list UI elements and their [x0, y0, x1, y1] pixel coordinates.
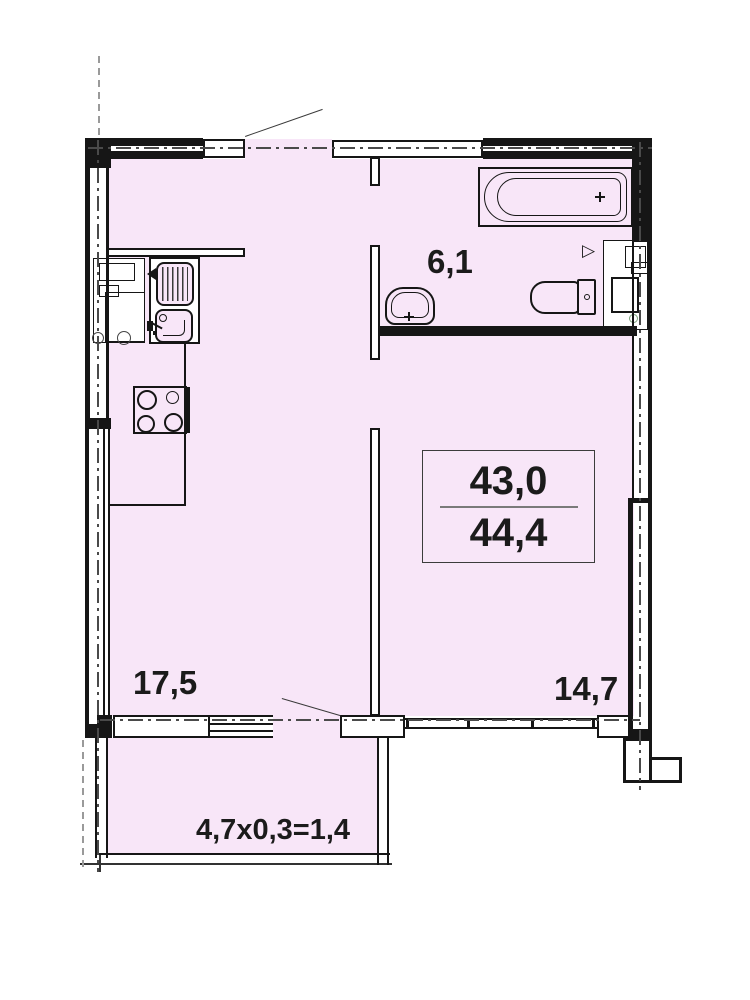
left-window-glass-2: [108, 429, 110, 724]
area-stamp: 43,0 44,4: [422, 450, 595, 563]
toilet-button: [584, 294, 590, 300]
drainboard-ribs: [162, 267, 188, 301]
entry-opening-fill: [245, 139, 332, 160]
balcony-wall-left-2: [106, 738, 108, 858]
window-mullion-1: [406, 720, 409, 727]
left-wall-outer: [85, 168, 90, 418]
washbasin-tap-h: [404, 316, 414, 318]
window-mullion-3: [531, 720, 534, 727]
kitchen-counter: [107, 248, 245, 257]
sink-drainboard: [156, 262, 194, 306]
burner-2: [166, 391, 179, 404]
balcony-window-line-2: [210, 730, 273, 732]
left-window-glass-1: [103, 429, 105, 724]
kitchen-zone-line-h: [110, 504, 186, 506]
right-wall-outer: [648, 138, 652, 738]
balcony-window-line-1: [210, 723, 273, 725]
faucet-dot: [153, 331, 157, 335]
left-window-outer: [85, 429, 89, 724]
exterior-step-vertical: [623, 738, 652, 783]
bottom-wall-centerline: [100, 719, 640, 721]
toilet-bowl: [530, 281, 580, 314]
balcony-outer-dash: [82, 740, 84, 868]
living-area-value: 43,0: [470, 459, 548, 506]
top-wall-centerline: [88, 147, 652, 149]
burner-1: [137, 390, 157, 410]
left-wall-centerline: [97, 140, 99, 872]
balcony-wall-right-2: [387, 738, 389, 865]
balcony-outer-bottom: [80, 863, 392, 865]
window-mullion-4: [592, 720, 595, 727]
cabinet-detail-1: [99, 263, 135, 281]
total-area-value: 44,4: [470, 508, 548, 555]
kitchen-area-label: 17,5: [133, 666, 197, 699]
window-mullion-2: [467, 720, 470, 727]
stove-edge: [185, 387, 190, 433]
floor-plan: ▷: [0, 0, 750, 1000]
left-wall-inner: [106, 168, 109, 418]
bathroom-area-label: 6,1: [427, 245, 473, 278]
right-wall-inner: [632, 242, 634, 498]
room-partition-wall: [370, 428, 380, 716]
balcony-wall-right-1: [377, 738, 379, 865]
balcony-area-formula: 4,7x0,3=1,4: [196, 816, 350, 845]
faucet-handle: [159, 314, 167, 322]
shaft-duct-3: [611, 277, 639, 313]
partition-stub: [370, 157, 380, 186]
entry-door: [332, 140, 483, 158]
bathtub-drain-h: [595, 196, 605, 198]
entry-leader-line: [245, 109, 323, 137]
sink-drain-mark: [163, 320, 185, 336]
door-direction-icon: ▷: [582, 243, 595, 260]
burner-3: [137, 415, 155, 433]
sink-spout: [147, 268, 156, 280]
balcony-corner-tick: [99, 855, 101, 872]
right-window-inner: [628, 498, 633, 734]
construction-line-top: [98, 56, 100, 138]
washbasin-inner: [391, 292, 429, 318]
bathroom-south-wall: [378, 326, 637, 336]
burner-4: [164, 413, 183, 432]
exterior-step-arm: [652, 757, 682, 783]
bathroom-west-wall: [370, 245, 380, 360]
right-wall-centerline: [639, 142, 641, 790]
cabinet-knob-2: [117, 331, 131, 345]
balcony-wall-bottom: [95, 853, 390, 855]
bedroom-area-label: 14,7: [554, 672, 618, 705]
